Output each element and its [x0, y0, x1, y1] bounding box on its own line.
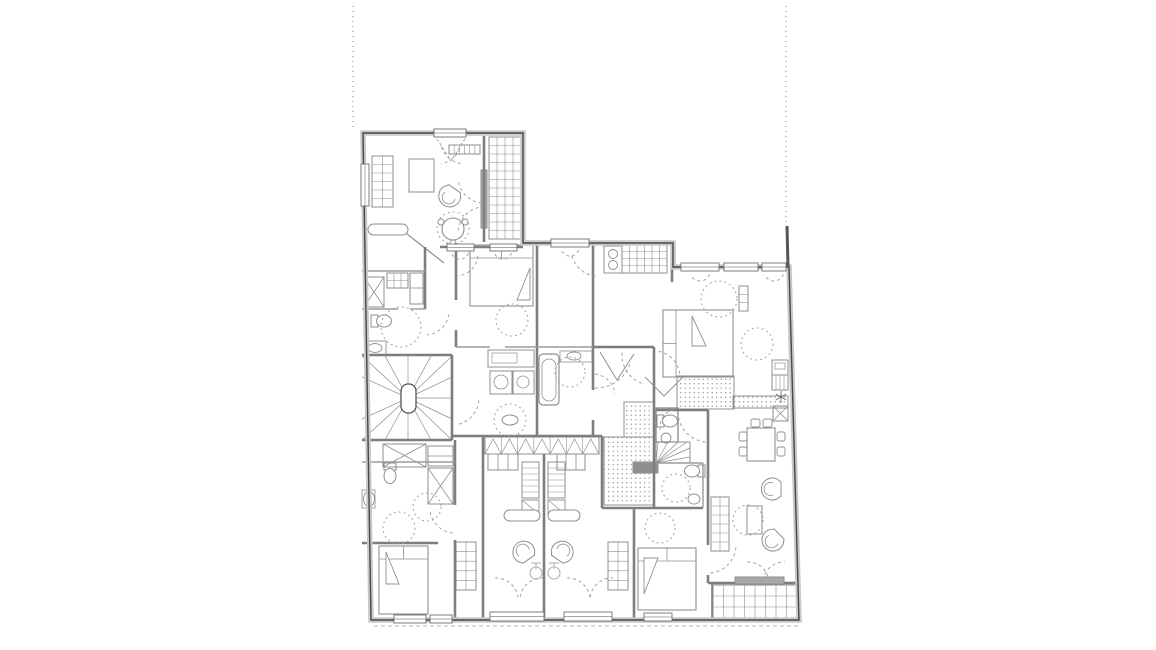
dining-chair	[777, 432, 785, 441]
wardrobe-band-peak	[485, 439, 501, 454]
kitchen-counter-pill	[368, 224, 408, 235]
door-swing	[590, 578, 613, 597]
dining-chair	[739, 447, 747, 456]
window-vent	[765, 274, 784, 281]
door-swing	[495, 578, 518, 597]
bath-sink	[567, 352, 581, 360]
closet-studio1	[488, 454, 518, 470]
party-wall-stub	[787, 226, 788, 267]
door-leaf	[451, 139, 465, 161]
armchair-studio2	[548, 537, 577, 566]
clearance-circle	[701, 281, 737, 317]
tub-chair-living	[434, 182, 463, 211]
wall-kitchen-unit	[772, 360, 788, 375]
wardrobe-band-peak	[566, 439, 582, 454]
clearance-circle	[741, 328, 773, 360]
clearance-circle	[494, 404, 526, 436]
floor-plan-drawing	[0, 0, 1156, 650]
wardrobe-band-peak	[501, 439, 517, 454]
counter-studio2	[548, 510, 580, 521]
bed-center-top-fold	[517, 268, 530, 300]
radiator-bedroom	[739, 286, 748, 311]
coffee-table-living	[409, 159, 434, 192]
sink-right-bath	[688, 494, 700, 504]
bathtub-inner	[542, 359, 556, 401]
kitchen-sink-bowl	[609, 261, 618, 270]
door-swing	[595, 374, 615, 394]
washer-drum	[494, 375, 508, 389]
wardrobe-band-peak	[550, 439, 566, 454]
clearance-circle	[662, 474, 690, 502]
window-vent	[452, 253, 469, 259]
window-vent	[562, 250, 579, 256]
wardrobe-band-peak	[534, 439, 550, 454]
table-chair	[438, 219, 444, 225]
dining-chair	[777, 447, 785, 456]
dining-chair	[751, 419, 760, 427]
entry-tiles-wedge	[624, 402, 654, 437]
laundry-shelf-inner	[492, 353, 517, 363]
door-swing	[520, 578, 543, 597]
clearance-circle	[413, 493, 441, 521]
door-swing	[679, 418, 706, 442]
wall-kitchen-unit-inner	[775, 363, 785, 369]
door-swing	[430, 512, 453, 533]
door-swing	[458, 256, 478, 276]
clearance-circle	[733, 505, 763, 535]
sink-upper-wc	[368, 344, 382, 353]
mini-stair-treads	[656, 448, 690, 463]
stair-core	[401, 384, 416, 413]
clearance-circle	[645, 513, 675, 543]
kitchen-sink-unit	[604, 246, 622, 273]
mini-stair-treads	[656, 442, 687, 463]
wardrobe-band-peak	[583, 439, 599, 454]
sliding-door-sill	[735, 577, 784, 584]
dryer	[513, 371, 534, 394]
dining-chair	[763, 419, 772, 427]
kitchen-sink-bowl	[609, 250, 618, 259]
armchair-right-1	[761, 478, 781, 500]
floor-plan-page	[0, 0, 1156, 650]
door-swing	[458, 179, 482, 203]
door-swing	[458, 207, 482, 231]
toilet-upper-wc	[371, 315, 392, 327]
door-swing	[567, 578, 590, 597]
dryer-drum	[517, 376, 529, 388]
toilet-wc	[657, 415, 678, 427]
window-vent	[691, 274, 710, 281]
armchair-studio1	[508, 537, 537, 566]
bed-left-fold	[386, 552, 399, 584]
dining-chair	[739, 432, 747, 441]
toilet-lower-bath	[384, 463, 396, 484]
bath-counter	[560, 351, 592, 362]
washer	[490, 371, 512, 394]
shelf-hall	[410, 273, 423, 304]
bed-right-top-fold	[692, 316, 706, 346]
counter-studio1	[504, 510, 540, 521]
wardrobe-band-peak	[518, 439, 534, 454]
open-door-leaf	[617, 354, 634, 380]
toilet-right-bath	[685, 465, 706, 477]
bed-bottom-center-fold	[644, 558, 658, 594]
dining-table	[747, 428, 775, 461]
door-swing	[622, 350, 642, 383]
door-swing	[659, 351, 680, 374]
door-swing	[457, 400, 479, 424]
hall-side-table	[502, 415, 518, 425]
clearance-circle	[383, 512, 415, 544]
laundry-shelf	[488, 350, 534, 367]
round-table	[442, 218, 464, 240]
clearance-circle	[496, 304, 528, 336]
door-swing	[427, 314, 449, 335]
entry-tiles-a	[677, 376, 734, 409]
